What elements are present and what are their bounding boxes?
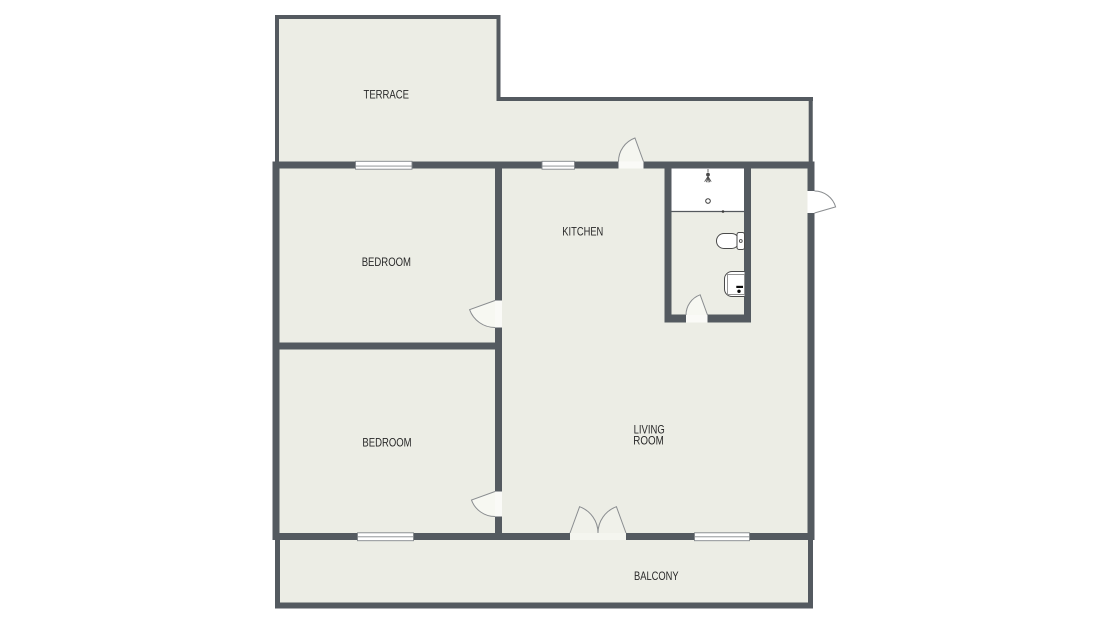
svg-text:BALCONY: BALCONY: [634, 570, 679, 583]
svg-text:TERRACE: TERRACE: [364, 88, 410, 101]
svg-text:KITCHEN: KITCHEN: [562, 225, 603, 238]
svg-text:ROOM: ROOM: [633, 435, 664, 448]
svg-text:BEDROOM: BEDROOM: [362, 256, 411, 269]
svg-text:BEDROOM: BEDROOM: [362, 436, 411, 449]
